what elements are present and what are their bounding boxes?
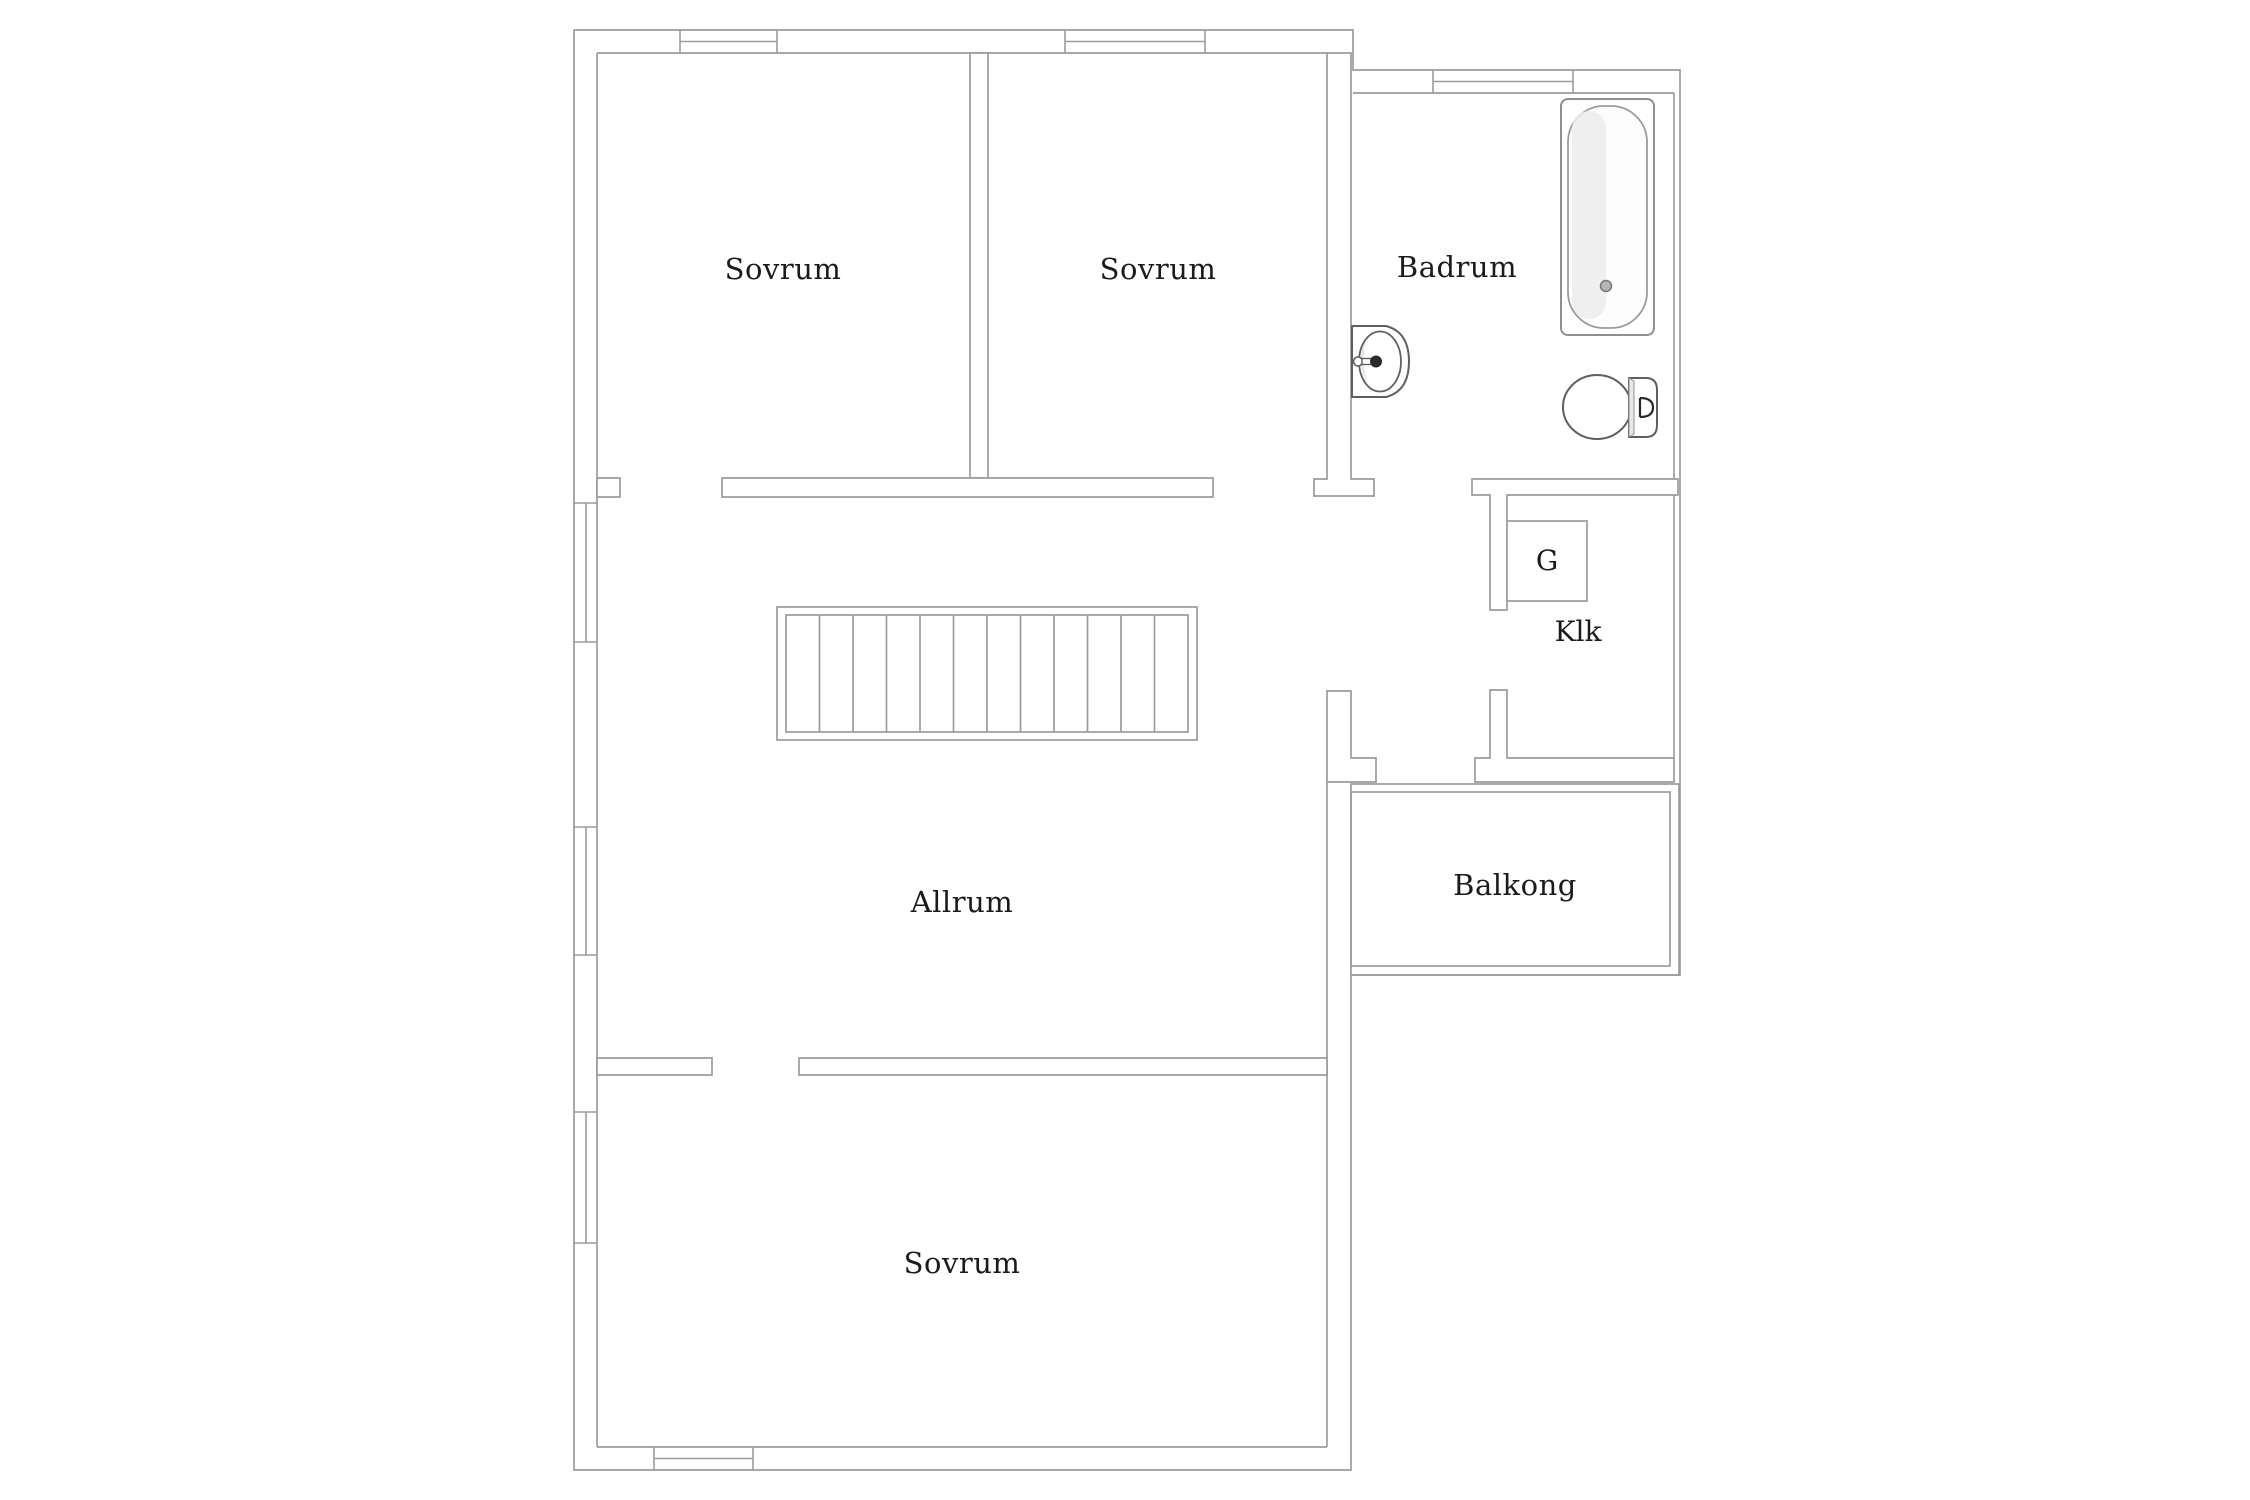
room-label-garderob: G xyxy=(1536,544,1558,577)
exterior-walls xyxy=(574,30,1680,1470)
sink xyxy=(1352,326,1409,397)
exterior-outline xyxy=(574,30,1680,1470)
room-label-allrum: Allrum xyxy=(910,885,1014,919)
bathtub xyxy=(1561,99,1654,335)
toilet-tank-lid xyxy=(1629,378,1634,437)
sink-faucet-knob-icon xyxy=(1354,357,1363,366)
window-bottom-1 xyxy=(654,1447,753,1470)
stairs-treads xyxy=(820,615,1155,732)
balcony-right-wall xyxy=(1475,690,1674,782)
room-label-klk: Klk xyxy=(1555,615,1603,648)
window-badrum xyxy=(1433,70,1573,93)
window-top-2 xyxy=(1065,30,1205,53)
bedroom-divider-wall xyxy=(970,53,988,478)
middle-wall-left-stub xyxy=(597,478,620,497)
toilet-bowl xyxy=(1563,375,1631,439)
middle-wall-main xyxy=(722,478,1213,497)
room-labels: Sovrum Sovrum Badrum G Klk Allrum Balkon… xyxy=(725,250,1603,1280)
badrum-left-wall xyxy=(1314,53,1374,496)
floor-plan: Sovrum Sovrum Badrum G Klk Allrum Balkon… xyxy=(0,0,2250,1500)
room-label-sovrum-1: Sovrum xyxy=(725,252,842,286)
window-left-3 xyxy=(574,1112,597,1243)
bathtub-drain-icon xyxy=(1601,281,1612,292)
window-top-1 xyxy=(680,30,777,53)
room-label-sovrum-2: Sovrum xyxy=(1100,252,1217,286)
toilet xyxy=(1563,375,1657,439)
window-left-2 xyxy=(574,827,597,955)
room-label-sovrum-3: Sovrum xyxy=(904,1246,1021,1280)
balcony-left-stub xyxy=(1327,691,1376,782)
bottom-bedroom-wall-left xyxy=(597,1058,712,1075)
sink-faucet-icon xyxy=(1370,356,1382,368)
room-label-balkong: Balkong xyxy=(1453,868,1577,902)
floor-plan-page: Sovrum Sovrum Badrum G Klk Allrum Balkon… xyxy=(0,0,2250,1500)
room-label-badrum: Badrum xyxy=(1397,250,1517,284)
window-left-1 xyxy=(574,503,597,642)
stairs xyxy=(777,607,1197,740)
windows xyxy=(574,30,1573,1470)
bottom-bedroom-wall-right xyxy=(799,1058,1327,1075)
